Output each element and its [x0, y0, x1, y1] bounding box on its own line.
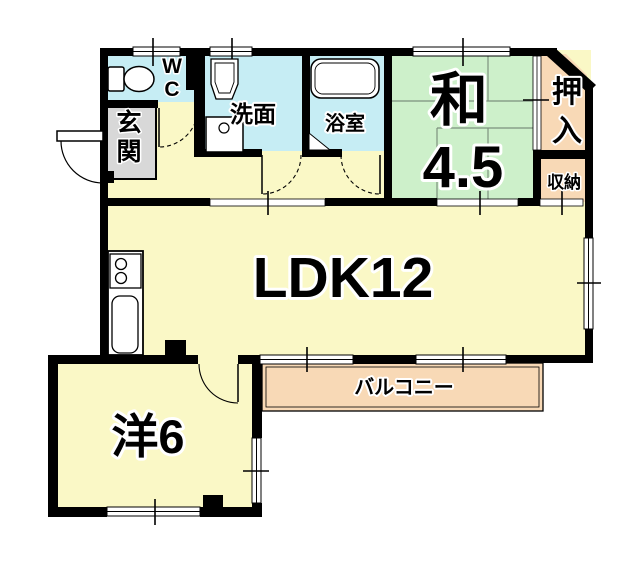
room-washitsu-label: 和 [430, 68, 488, 133]
floor-plan-page: W C 玄 関 洗面 浴室 和 4.5 押 入 収納 LDK12 洋6 バルコニ… [0, 0, 640, 564]
room-wc-label-1: W [162, 55, 182, 78]
kitchen-counter-icon [108, 251, 143, 355]
room-ldk-label: LDK12 [253, 246, 434, 310]
fusuma-oshiire [533, 56, 541, 150]
pillar-nub [165, 340, 186, 357]
floor-plan: W C 玄 関 洗面 浴室 和 4.5 押 入 収納 LDK12 洋6 バルコニ… [0, 0, 640, 564]
opening-washitsu-ldk [437, 199, 518, 206]
kitchen-sink-icon [112, 296, 138, 353]
window [210, 47, 252, 56]
entrance-door-arc [61, 141, 103, 183]
window [107, 507, 200, 516]
burner-icon [116, 259, 127, 270]
entrance-door-leaf [57, 131, 103, 141]
washbasin-icon [211, 59, 238, 99]
room-washitsu-size: 4.5 [423, 135, 504, 200]
window [413, 47, 510, 56]
bathtub-icon [311, 59, 379, 98]
room-yokushitsu-label: 浴室 [325, 111, 365, 135]
balcony-label: バルコニー [354, 376, 454, 399]
stove-icon [110, 254, 141, 288]
toilet-icon [108, 67, 154, 92]
burner-icon [116, 273, 127, 284]
room-wc-label-2: C [164, 78, 179, 101]
pillar-nub [203, 495, 223, 509]
room-senmen-label: 洗面 [230, 101, 276, 127]
room-genkan-label-2: 関 [116, 138, 141, 166]
room-oshiire-label-2: 入 [552, 115, 582, 148]
window [416, 355, 506, 364]
room-oshiire-label-1: 押 [552, 76, 582, 109]
room-youshitsu-label: 洋6 [111, 410, 184, 463]
room-shunou-label: 収納 [547, 172, 581, 192]
room-genkan-label-1: 玄 [116, 108, 141, 137]
genkan-step-nub [100, 171, 114, 183]
